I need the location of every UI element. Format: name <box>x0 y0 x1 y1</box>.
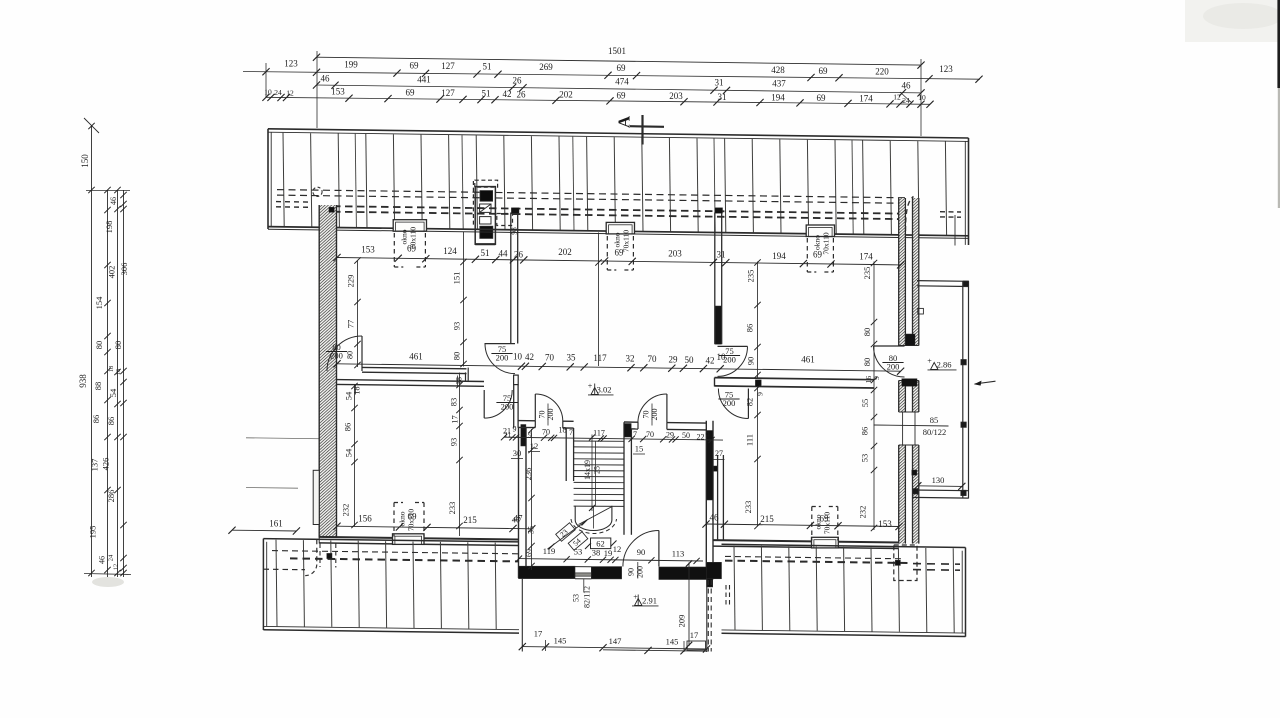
svg-text:153: 153 <box>331 87 345 97</box>
svg-text:461: 461 <box>801 355 815 365</box>
svg-text:80/122: 80/122 <box>923 427 947 437</box>
svg-text:130: 130 <box>932 475 945 485</box>
svg-text:269: 269 <box>539 62 553 72</box>
svg-text:98: 98 <box>510 227 519 235</box>
svg-text:14x19: 14x19 <box>583 460 592 480</box>
svg-text:2.86: 2.86 <box>937 360 952 370</box>
svg-text:83: 83 <box>449 398 459 407</box>
svg-text:12: 12 <box>530 441 539 451</box>
svg-text:194: 194 <box>771 93 785 103</box>
svg-text:215: 215 <box>760 514 774 524</box>
svg-text:402: 402 <box>107 266 117 279</box>
svg-text:18: 18 <box>559 426 567 435</box>
svg-text:80: 80 <box>346 351 355 359</box>
svg-text:9: 9 <box>756 392 765 396</box>
svg-text:202: 202 <box>558 247 572 257</box>
svg-text:195: 195 <box>88 526 98 539</box>
svg-text:156: 156 <box>358 514 372 524</box>
svg-text:69: 69 <box>615 248 625 258</box>
svg-text:69: 69 <box>525 549 534 557</box>
svg-text:69: 69 <box>617 63 627 73</box>
svg-text:229: 229 <box>346 275 356 288</box>
svg-text:93: 93 <box>449 438 459 447</box>
svg-text:86: 86 <box>343 423 353 432</box>
svg-text:233: 233 <box>447 502 457 515</box>
svg-text:85: 85 <box>930 415 939 425</box>
svg-text:47: 47 <box>512 515 521 525</box>
svg-text:26: 26 <box>513 76 523 86</box>
svg-text:35: 35 <box>567 353 577 363</box>
svg-text:235: 235 <box>746 270 756 283</box>
svg-text:200: 200 <box>636 566 645 578</box>
svg-text:70: 70 <box>542 428 550 437</box>
svg-text:235: 235 <box>862 267 872 280</box>
svg-text:51: 51 <box>483 62 492 72</box>
svg-text:127: 127 <box>441 88 455 98</box>
svg-text:123: 123 <box>284 59 298 69</box>
svg-text:53: 53 <box>572 594 581 602</box>
svg-text:42: 42 <box>706 356 715 366</box>
svg-text:55: 55 <box>860 399 870 408</box>
svg-text:69: 69 <box>408 512 418 522</box>
svg-text:82/112: 82/112 <box>583 586 592 608</box>
svg-text:69: 69 <box>410 61 420 71</box>
svg-text:29: 29 <box>666 431 674 440</box>
svg-text:69: 69 <box>617 91 627 101</box>
svg-text:137: 137 <box>90 459 100 472</box>
svg-text:46: 46 <box>902 80 912 90</box>
svg-text:215: 215 <box>463 515 477 525</box>
svg-text:okno: okno <box>400 229 409 244</box>
svg-text:306: 306 <box>119 263 129 276</box>
svg-text:9: 9 <box>513 425 517 434</box>
svg-text:90: 90 <box>746 357 756 366</box>
svg-text:18: 18 <box>353 387 362 395</box>
svg-text:18: 18 <box>108 366 115 373</box>
svg-text:70: 70 <box>545 353 555 363</box>
svg-text:69: 69 <box>813 250 823 260</box>
svg-text:286: 286 <box>106 490 116 503</box>
svg-text:24: 24 <box>108 554 115 561</box>
svg-text:26: 26 <box>517 89 527 99</box>
svg-text:53: 53 <box>860 454 870 463</box>
svg-text:10: 10 <box>513 352 523 362</box>
svg-text:437: 437 <box>772 78 786 88</box>
svg-text:150: 150 <box>80 154 90 168</box>
svg-text:426: 426 <box>101 458 111 471</box>
svg-text:2.91: 2.91 <box>642 596 657 606</box>
svg-text:88: 88 <box>93 382 103 391</box>
svg-text:441: 441 <box>417 75 431 85</box>
svg-text:12: 12 <box>893 93 901 102</box>
svg-text:119: 119 <box>543 546 555 556</box>
svg-text:46: 46 <box>321 74 331 84</box>
svg-text:7: 7 <box>633 430 637 439</box>
svg-text:22: 22 <box>697 433 705 442</box>
svg-text:42: 42 <box>525 352 534 362</box>
svg-text:236: 236 <box>523 468 533 481</box>
svg-text:12: 12 <box>113 564 120 571</box>
svg-text:27: 27 <box>715 449 723 458</box>
svg-text:117: 117 <box>593 429 605 438</box>
svg-text:46: 46 <box>710 513 720 523</box>
svg-text:31: 31 <box>718 92 727 102</box>
svg-text:203: 203 <box>669 91 683 101</box>
svg-text:1501: 1501 <box>608 46 626 56</box>
svg-text:18: 18 <box>455 377 464 385</box>
svg-text:12: 12 <box>286 89 294 98</box>
svg-text:69: 69 <box>817 93 827 103</box>
svg-text:90: 90 <box>637 547 646 557</box>
svg-text:31: 31 <box>717 250 726 260</box>
svg-text:200: 200 <box>546 409 555 421</box>
svg-text:15: 15 <box>635 444 644 454</box>
svg-text:220: 220 <box>875 67 889 77</box>
svg-text:200: 200 <box>723 398 736 408</box>
svg-text:31: 31 <box>715 78 724 88</box>
svg-text:428: 428 <box>771 65 785 75</box>
svg-text:77: 77 <box>346 320 356 329</box>
svg-text:35: 35 <box>527 526 536 534</box>
svg-text:9: 9 <box>706 431 710 440</box>
svg-text:10: 10 <box>717 352 727 362</box>
svg-text:86: 86 <box>745 324 755 333</box>
svg-text:10: 10 <box>918 93 926 102</box>
svg-text:209: 209 <box>677 615 687 628</box>
svg-text:51: 51 <box>481 248 490 258</box>
svg-text:25: 25 <box>593 466 602 474</box>
svg-text:17: 17 <box>534 629 543 639</box>
svg-text:17: 17 <box>690 630 699 640</box>
svg-text:86: 86 <box>106 417 116 426</box>
svg-text:151: 151 <box>452 272 462 285</box>
svg-text:21: 21 <box>504 430 512 439</box>
svg-text:145: 145 <box>554 636 567 646</box>
svg-text:53: 53 <box>574 547 583 557</box>
svg-text:145: 145 <box>666 637 679 647</box>
svg-text:174: 174 <box>859 94 873 104</box>
svg-text:127: 127 <box>441 61 455 71</box>
svg-text:okno: okno <box>613 232 622 247</box>
svg-text:69: 69 <box>819 66 829 76</box>
svg-text:147: 147 <box>609 636 622 646</box>
svg-text:69: 69 <box>406 88 416 98</box>
svg-text:461: 461 <box>409 352 423 362</box>
svg-text:50: 50 <box>685 355 695 365</box>
svg-text:200: 200 <box>887 362 900 372</box>
svg-text:161: 161 <box>269 519 283 529</box>
svg-text:232: 232 <box>858 506 868 519</box>
svg-text:54: 54 <box>344 448 354 457</box>
svg-text:86: 86 <box>91 415 101 424</box>
svg-text:80: 80 <box>862 328 872 337</box>
svg-text:50: 50 <box>682 431 690 440</box>
svg-text:51: 51 <box>482 89 491 99</box>
svg-text:10: 10 <box>264 88 272 97</box>
svg-text:29: 29 <box>669 355 679 365</box>
svg-text:174: 174 <box>859 252 873 262</box>
svg-text:80: 80 <box>452 352 462 361</box>
svg-text:232: 232 <box>341 504 351 517</box>
svg-text:70: 70 <box>646 430 654 439</box>
svg-text:okno: okno <box>813 235 822 250</box>
svg-text:153: 153 <box>878 519 892 529</box>
svg-text:154: 154 <box>94 296 104 310</box>
svg-text:90: 90 <box>627 568 636 576</box>
svg-text:17: 17 <box>450 415 460 424</box>
svg-text:124: 124 <box>443 246 457 256</box>
svg-text:44: 44 <box>499 249 509 259</box>
svg-text:26: 26 <box>514 250 524 260</box>
svg-text:69: 69 <box>407 244 417 254</box>
svg-text:+: + <box>588 382 593 391</box>
svg-text:200: 200 <box>501 402 514 412</box>
svg-text:202: 202 <box>559 90 573 100</box>
svg-text:42: 42 <box>503 89 512 99</box>
svg-text:46: 46 <box>109 197 118 205</box>
svg-text:117: 117 <box>593 353 607 363</box>
svg-text:7: 7 <box>569 428 573 437</box>
svg-text:200: 200 <box>330 351 343 361</box>
svg-text:16: 16 <box>115 368 122 375</box>
svg-text:194: 194 <box>772 251 786 261</box>
svg-text:93: 93 <box>452 322 462 331</box>
svg-text:69: 69 <box>820 514 830 524</box>
svg-text:198: 198 <box>104 221 114 234</box>
svg-text:938: 938 <box>78 374 88 388</box>
svg-text:3.02: 3.02 <box>597 385 612 395</box>
svg-text:80: 80 <box>94 341 104 350</box>
svg-text:70x110: 70x110 <box>822 232 831 254</box>
svg-text:54: 54 <box>344 391 354 400</box>
svg-text:A: A <box>615 115 634 128</box>
svg-text:153: 153 <box>361 245 375 255</box>
svg-text:19: 19 <box>604 548 613 558</box>
svg-text:+: + <box>927 357 932 366</box>
svg-text:474: 474 <box>615 77 629 87</box>
svg-text:24: 24 <box>274 88 282 97</box>
svg-text:12: 12 <box>613 544 622 554</box>
svg-text:70: 70 <box>648 354 658 364</box>
svg-text:113: 113 <box>672 549 684 559</box>
svg-text:32: 32 <box>626 354 635 364</box>
svg-text:200: 200 <box>650 409 659 421</box>
svg-text:9: 9 <box>528 431 532 440</box>
svg-text:80: 80 <box>113 341 123 350</box>
svg-text:46: 46 <box>98 556 107 564</box>
svg-text:82: 82 <box>745 398 755 407</box>
svg-text:38: 38 <box>592 548 601 558</box>
svg-text:233: 233 <box>743 501 753 514</box>
svg-text:54: 54 <box>108 388 118 397</box>
svg-text:199: 199 <box>344 60 358 70</box>
svg-text:200: 200 <box>496 353 509 363</box>
svg-text:123: 123 <box>939 64 953 74</box>
svg-text:86: 86 <box>860 427 870 436</box>
svg-text:111: 111 <box>745 434 755 446</box>
svg-text:30: 30 <box>513 448 522 458</box>
svg-text:80: 80 <box>862 358 872 367</box>
svg-text:203: 203 <box>668 249 682 259</box>
